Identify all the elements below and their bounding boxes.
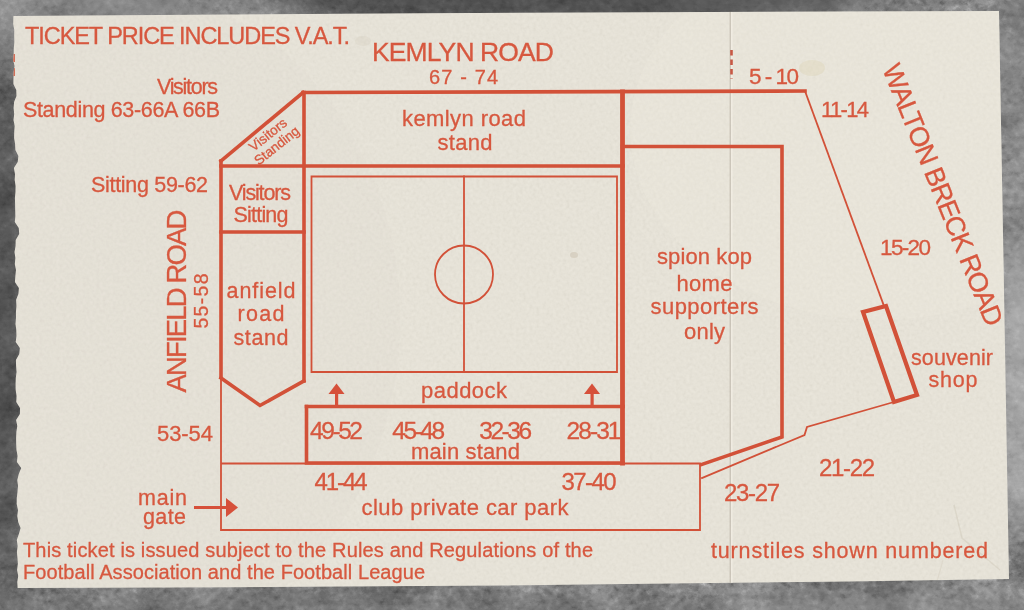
svg-text:21-22: 21-22 [819,454,875,481]
svg-text:55-58: 55-58 [190,274,212,329]
svg-text:This ticket is issued subject: This ticket is issued subject to the Rul… [23,539,593,561]
svg-text:home: home [677,271,733,296]
svg-text:spion kop: spion kop [657,244,752,269]
svg-text:28-31: 28-31 [567,417,622,444]
svg-text:11-14: 11-14 [821,97,869,122]
svg-text:supporters: supporters [651,294,759,319]
svg-text:37-40: 37-40 [562,468,617,495]
svg-text:kemlyn road: kemlyn road [402,106,526,131]
svg-text:23-27: 23-27 [724,479,780,506]
svg-text:anfield: anfield [227,279,296,303]
svg-text:5 - 10: 5 - 10 [749,64,799,89]
svg-text:club private car park: club private car park [362,495,570,520]
svg-text:53-54: 53-54 [157,421,213,446]
svg-text:road: road [238,302,285,326]
svg-text:turnstiles shown numbered: turnstiles shown numbered [711,539,988,563]
svg-text:Standing 63-66A 66B: Standing 63-66A 66B [23,98,220,122]
svg-text:Football Association and the F: Football Association and the Football Le… [23,561,425,583]
svg-text:gate: gate [143,505,186,529]
svg-text:main stand: main stand [411,439,520,464]
svg-text:ANFIELD ROAD: ANFIELD ROAD [161,210,192,393]
svg-text:41-44: 41-44 [315,468,368,495]
svg-text:stand: stand [234,326,289,350]
svg-text:15-20: 15-20 [880,235,931,260]
svg-text:KEMLYN ROAD: KEMLYN ROAD [372,37,554,67]
svg-text:shop: shop [929,368,978,392]
svg-text:Sitting 59-62: Sitting 59-62 [91,173,208,197]
svg-text:stand: stand [438,130,493,155]
svg-text:67 - 74: 67 - 74 [429,66,498,88]
svg-text:TICKET PRICE INCLUDES V.A.T.: TICKET PRICE INCLUDES V.A.T. [25,23,350,49]
svg-text:49-52: 49-52 [310,417,363,444]
svg-text:Visitors: Visitors [157,75,218,99]
svg-text:Sitting: Sitting [234,203,289,227]
svg-text:only: only [684,319,725,344]
svg-text:Visitors: Visitors [229,181,291,205]
svg-text:paddock: paddock [421,378,508,403]
svg-text:souvenir: souvenir [911,346,993,370]
